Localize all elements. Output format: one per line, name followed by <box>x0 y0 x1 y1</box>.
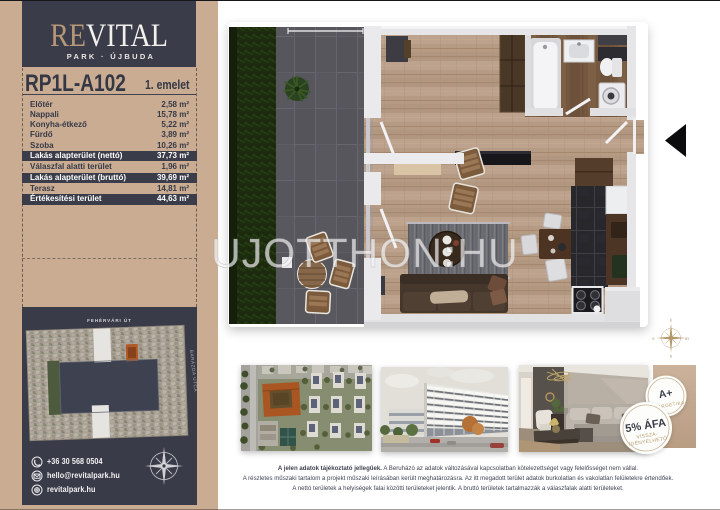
svg-text:BARÁZDA UTCA: BARÁZDA UTCA <box>189 349 199 392</box>
svg-text:É: É <box>670 318 672 323</box>
svg-text:A+: A+ <box>658 387 674 401</box>
svg-text:K: K <box>653 337 656 341</box>
svg-text:NY: NY <box>685 337 690 341</box>
svg-text:D: D <box>670 355 673 359</box>
